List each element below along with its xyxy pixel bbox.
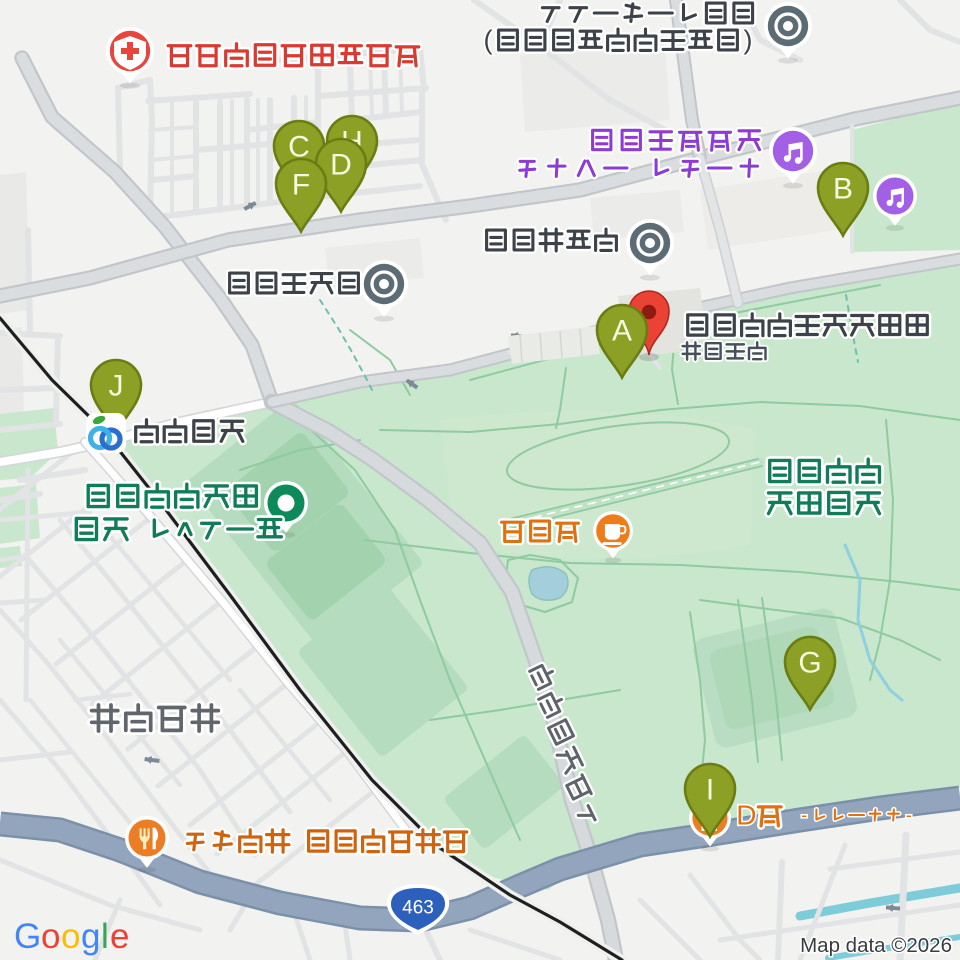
- svg-text:A: A: [612, 315, 632, 348]
- svg-text:o: o: [41, 917, 60, 956]
- svg-text:-: -: [801, 805, 807, 825]
- svg-text:B: B: [833, 173, 853, 206]
- svg-text:G: G: [14, 917, 41, 956]
- svg-text:(: (: [484, 25, 493, 55]
- svg-text:e: e: [110, 917, 129, 956]
- svg-text:Map data ©2026: Map data ©2026: [800, 934, 952, 957]
- svg-text:D: D: [736, 800, 756, 831]
- svg-text:D: D: [330, 149, 352, 182]
- svg-text:G: G: [798, 647, 821, 680]
- svg-text:J: J: [109, 370, 124, 403]
- svg-text:F: F: [292, 169, 310, 202]
- svg-text:I: I: [706, 774, 714, 807]
- svg-text:g: g: [81, 917, 100, 956]
- svg-text:): ): [744, 25, 753, 55]
- svg-text:o: o: [61, 917, 80, 956]
- svg-text:-: -: [906, 805, 912, 825]
- svg-text:463: 463: [402, 898, 434, 919]
- svg-text:l: l: [101, 917, 109, 956]
